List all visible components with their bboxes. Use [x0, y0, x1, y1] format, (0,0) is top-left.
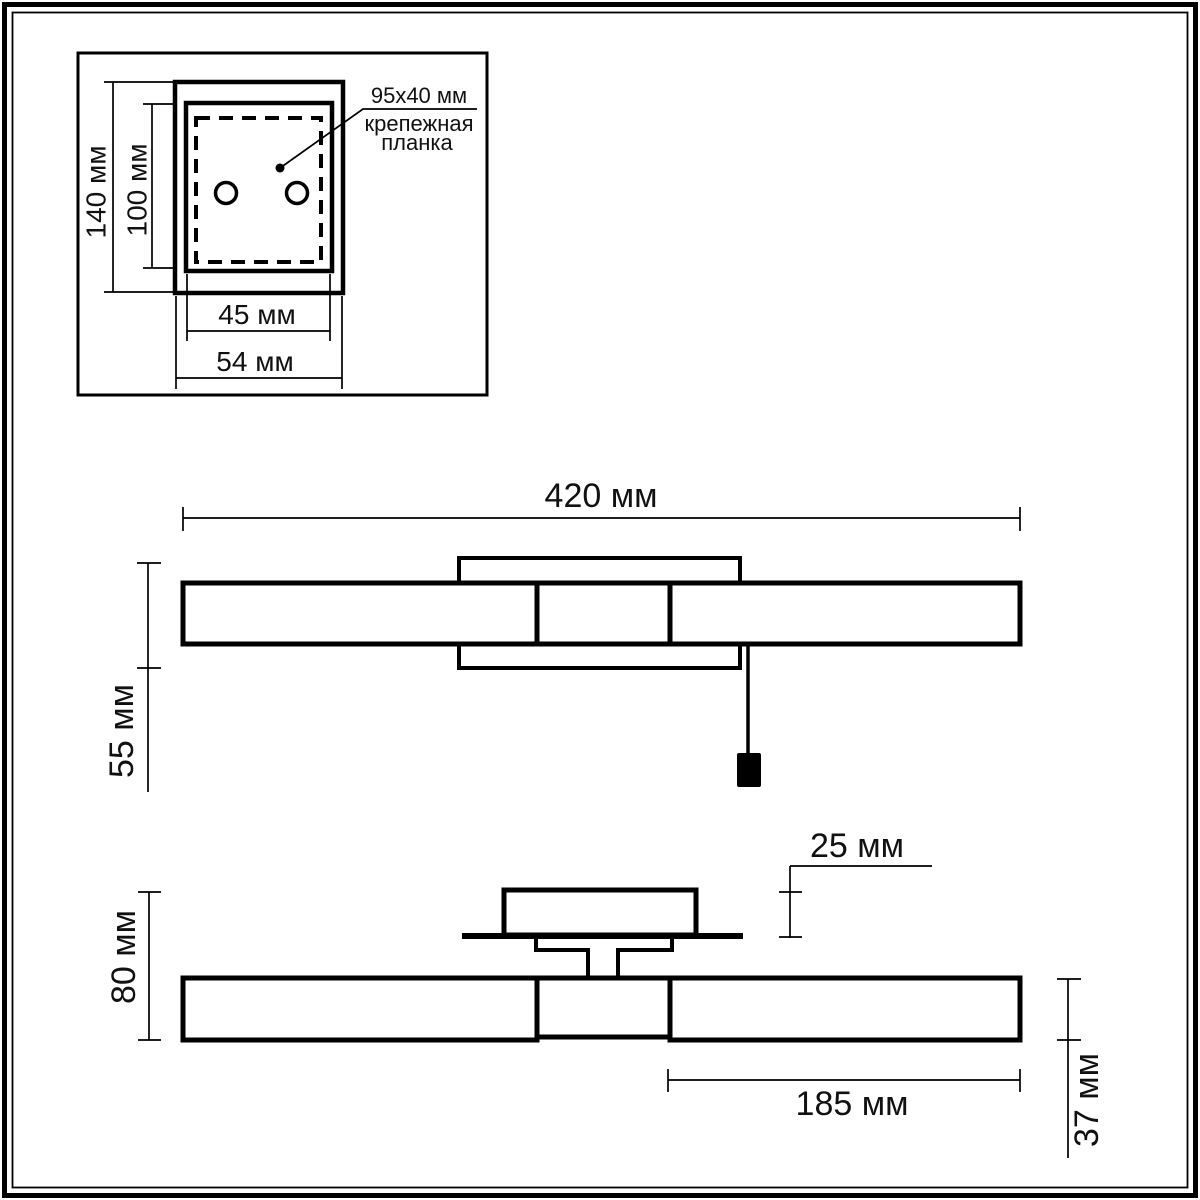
dim-label-55: 55 мм [103, 684, 141, 778]
screw-hole-right [287, 183, 308, 204]
shade-right-bottom [670, 978, 1020, 1040]
shade-left-bottom [183, 978, 537, 1040]
dim-label-140: 140 мм [80, 146, 111, 239]
callout-name-line2: планка [381, 130, 453, 155]
technical-drawing-page: 140 мм 100 мм 95x40 мм крепежная планка … [0, 0, 1200, 1200]
dim-label-185: 185 мм [796, 1085, 909, 1123]
plate-inner [186, 103, 332, 271]
dim-label-45: 45 мм [218, 299, 295, 330]
dim-label-100: 100 мм [121, 144, 152, 237]
pull-cord-handle [737, 753, 761, 787]
lamp-center-front [537, 583, 670, 644]
dim-label-420: 420 мм [545, 477, 658, 515]
screw-hole-left [216, 183, 237, 204]
dim-label-37: 37 мм [1068, 1053, 1106, 1147]
canopy-box [504, 890, 696, 935]
callout-size-label: 95x40 мм [371, 83, 467, 108]
lamp-center-bottom [537, 978, 670, 1037]
drawing-canvas: 140 мм 100 мм 95x40 мм крепежная планка … [0, 0, 1200, 1200]
dim-label-54: 54 мм [216, 346, 293, 377]
dim-label-80: 80 мм [105, 910, 143, 1004]
dim-label-25: 25 мм [810, 827, 904, 865]
detail-view: 140 мм 100 мм 95x40 мм крепежная планка … [78, 53, 487, 395]
shade-right-front [670, 583, 1020, 644]
shade-left-front [183, 583, 537, 644]
